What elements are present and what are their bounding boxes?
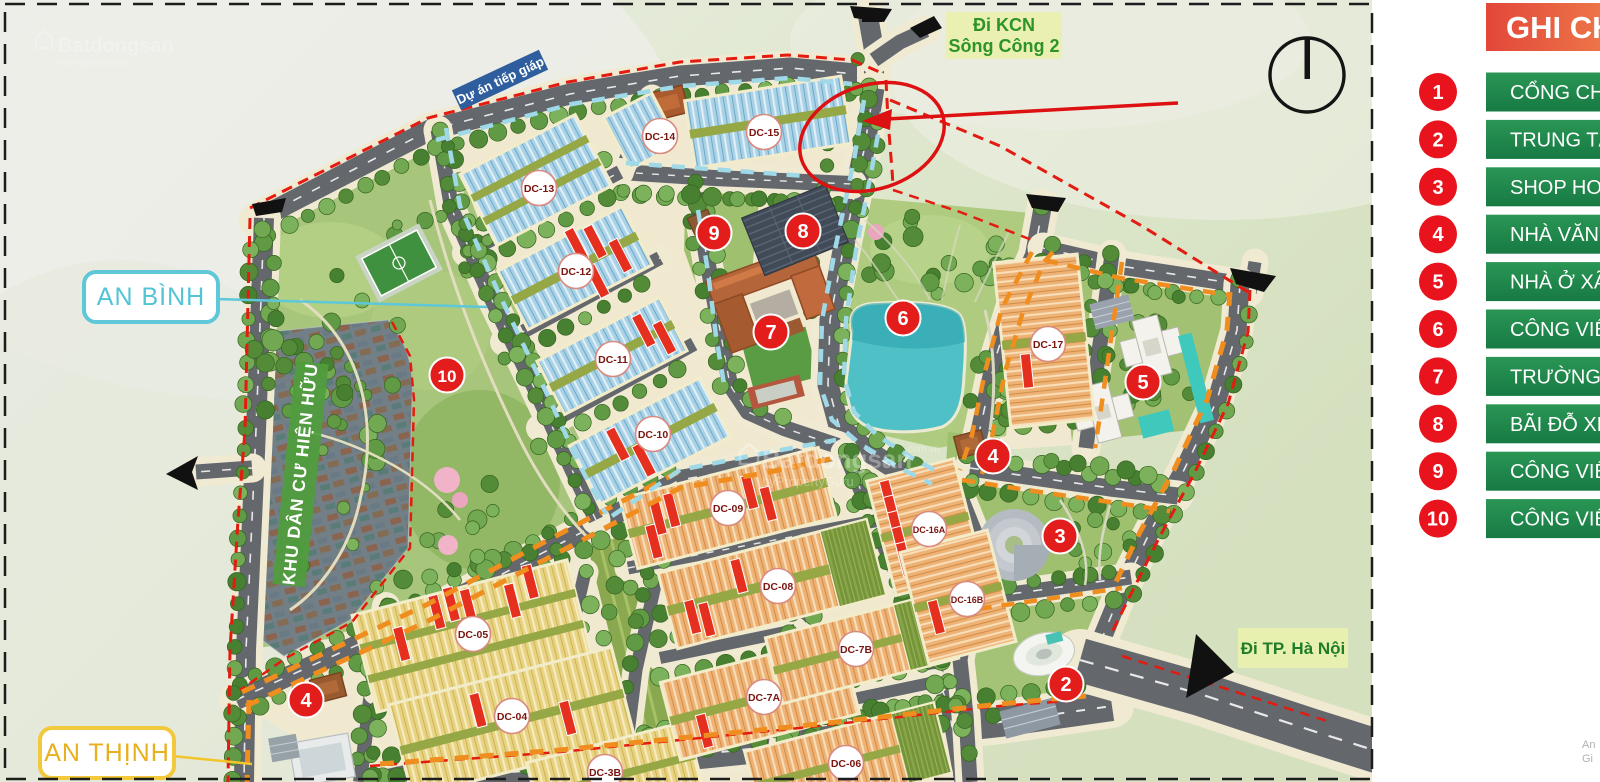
- svg-text:An: An: [1582, 739, 1595, 751]
- svg-text:3: 3: [1432, 177, 1443, 199]
- svg-text:8: 8: [1432, 414, 1443, 436]
- svg-text:DC-17: DC-17: [1033, 339, 1064, 351]
- svg-text:DC-12: DC-12: [561, 266, 592, 278]
- svg-text:7: 7: [1432, 366, 1443, 388]
- svg-text:5: 5: [1432, 272, 1443, 294]
- svg-text:SHOP HOUSE: SHOP HOUSE: [1510, 177, 1600, 199]
- svg-text:TRUNG TÂM: TRUNG TÂM: [1510, 128, 1600, 151]
- svg-text:AN BÌNH: AN BÌNH: [97, 282, 205, 311]
- svg-text:TRƯỜNG HỌC: TRƯỜNG HỌC: [1510, 365, 1600, 388]
- svg-text:Batdongsan: Batdongsan: [58, 35, 174, 57]
- svg-text:DC-05: DC-05: [458, 629, 489, 641]
- svg-text:4: 4: [300, 690, 312, 712]
- svg-text:CÔNG VIÊN: CÔNG VIÊN: [1510, 460, 1600, 483]
- svg-text:6: 6: [1432, 319, 1443, 341]
- svg-text:NHÀ Ở XÃ HỘI: NHÀ Ở XÃ HỘI: [1510, 270, 1600, 294]
- svg-text:CỔNG CHÀO: CỔNG CHÀO: [1510, 80, 1600, 104]
- svg-text:DC-7A: DC-7A: [748, 692, 781, 704]
- svg-text:6: 6: [897, 308, 908, 330]
- svg-text:Sông Công 2: Sông Công 2: [949, 36, 1060, 56]
- svg-text:Batdongsan: Batdongsan: [762, 444, 912, 474]
- svg-text:Đi TP. Hà Nội: Đi TP. Hà Nội: [1241, 639, 1346, 658]
- svg-text:DC-3B: DC-3B: [589, 767, 622, 779]
- svg-text:CÔNG VIÊN: CÔNG VIÊN: [1510, 318, 1600, 341]
- svg-text:4: 4: [987, 446, 999, 468]
- svg-text:2: 2: [1060, 674, 1071, 696]
- svg-text:4: 4: [1432, 224, 1444, 246]
- svg-text:DC-06: DC-06: [831, 758, 862, 770]
- svg-text:2: 2: [1432, 129, 1443, 151]
- svg-text:DC-15: DC-15: [749, 127, 780, 139]
- svg-text:DC-14: DC-14: [645, 131, 676, 143]
- svg-text:byPropertyGuru: byPropertyGuru: [58, 58, 129, 69]
- svg-text:NHÀ VĂN HÓA: NHÀ VĂN HÓA: [1510, 223, 1600, 246]
- svg-text:DC-10: DC-10: [638, 429, 669, 441]
- svg-text:DC-09: DC-09: [713, 503, 744, 515]
- svg-text:.com.vn: .com.vn: [905, 444, 940, 455]
- svg-text:DC-16B: DC-16B: [951, 595, 984, 605]
- svg-text:GHI CHÚ: GHI CHÚ: [1506, 9, 1600, 45]
- svg-text:Gi: Gi: [1582, 753, 1593, 765]
- svg-text:byPropertyGuru: byPropertyGuru: [762, 474, 854, 489]
- svg-text:10: 10: [1427, 509, 1449, 531]
- svg-text:DC-13: DC-13: [524, 183, 555, 195]
- svg-text:Đi KCN: Đi KCN: [973, 15, 1035, 35]
- svg-text:DC-08: DC-08: [763, 581, 794, 593]
- svg-text:DC-16A: DC-16A: [913, 525, 946, 535]
- svg-text:7: 7: [765, 322, 776, 344]
- svg-text:5: 5: [1137, 372, 1148, 394]
- svg-text:9: 9: [708, 223, 719, 245]
- svg-text:DC-04: DC-04: [497, 711, 528, 723]
- svg-text:AN THỊNH: AN THỊNH: [44, 739, 170, 767]
- svg-text:8: 8: [797, 221, 808, 243]
- svg-text:10: 10: [438, 367, 457, 386]
- svg-text:BÃI ĐỖ XE: BÃI ĐỖ XE: [1510, 412, 1600, 436]
- svg-text:DC-11: DC-11: [598, 354, 628, 366]
- svg-text:3: 3: [1054, 526, 1065, 548]
- svg-text:9: 9: [1432, 461, 1443, 483]
- svg-text:CÔNG VIÊN: CÔNG VIÊN: [1510, 508, 1600, 531]
- svg-text:DC-7B: DC-7B: [840, 644, 873, 656]
- svg-text:1: 1: [1432, 82, 1443, 104]
